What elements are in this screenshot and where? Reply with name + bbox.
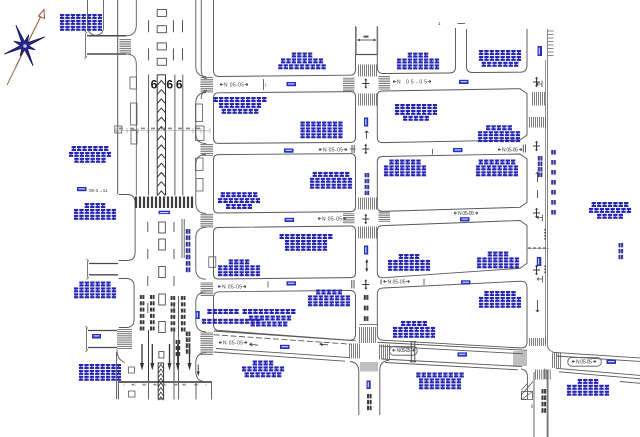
svg-text:N 05-05: N 05-05 [323, 148, 343, 154]
svg-text:N 05-05: N 05-05 [502, 148, 518, 154]
svg-text:|: | [265, 82, 266, 87]
svg-text:N 05-05: N 05-05 [223, 341, 243, 347]
svg-text:N 05-05: N 05-05 [397, 348, 411, 354]
svg-text:N 05-05: N 05-05 [576, 360, 592, 366]
svg-text:6: 6 [166, 78, 173, 92]
svg-text:N 05-05: N 05-05 [388, 280, 406, 286]
svg-text:6: 6 [176, 78, 183, 92]
svg-text:N 05-05: N 05-05 [224, 83, 244, 89]
svg-text:N 05-05: N 05-05 [458, 211, 474, 217]
svg-text:05-3→11: 05-3→11 [89, 188, 108, 193]
svg-text:N 05-05: N 05-05 [222, 285, 242, 291]
svg-text:6: 6 [151, 78, 158, 92]
svg-text:N 05-05: N 05-05 [322, 217, 342, 223]
